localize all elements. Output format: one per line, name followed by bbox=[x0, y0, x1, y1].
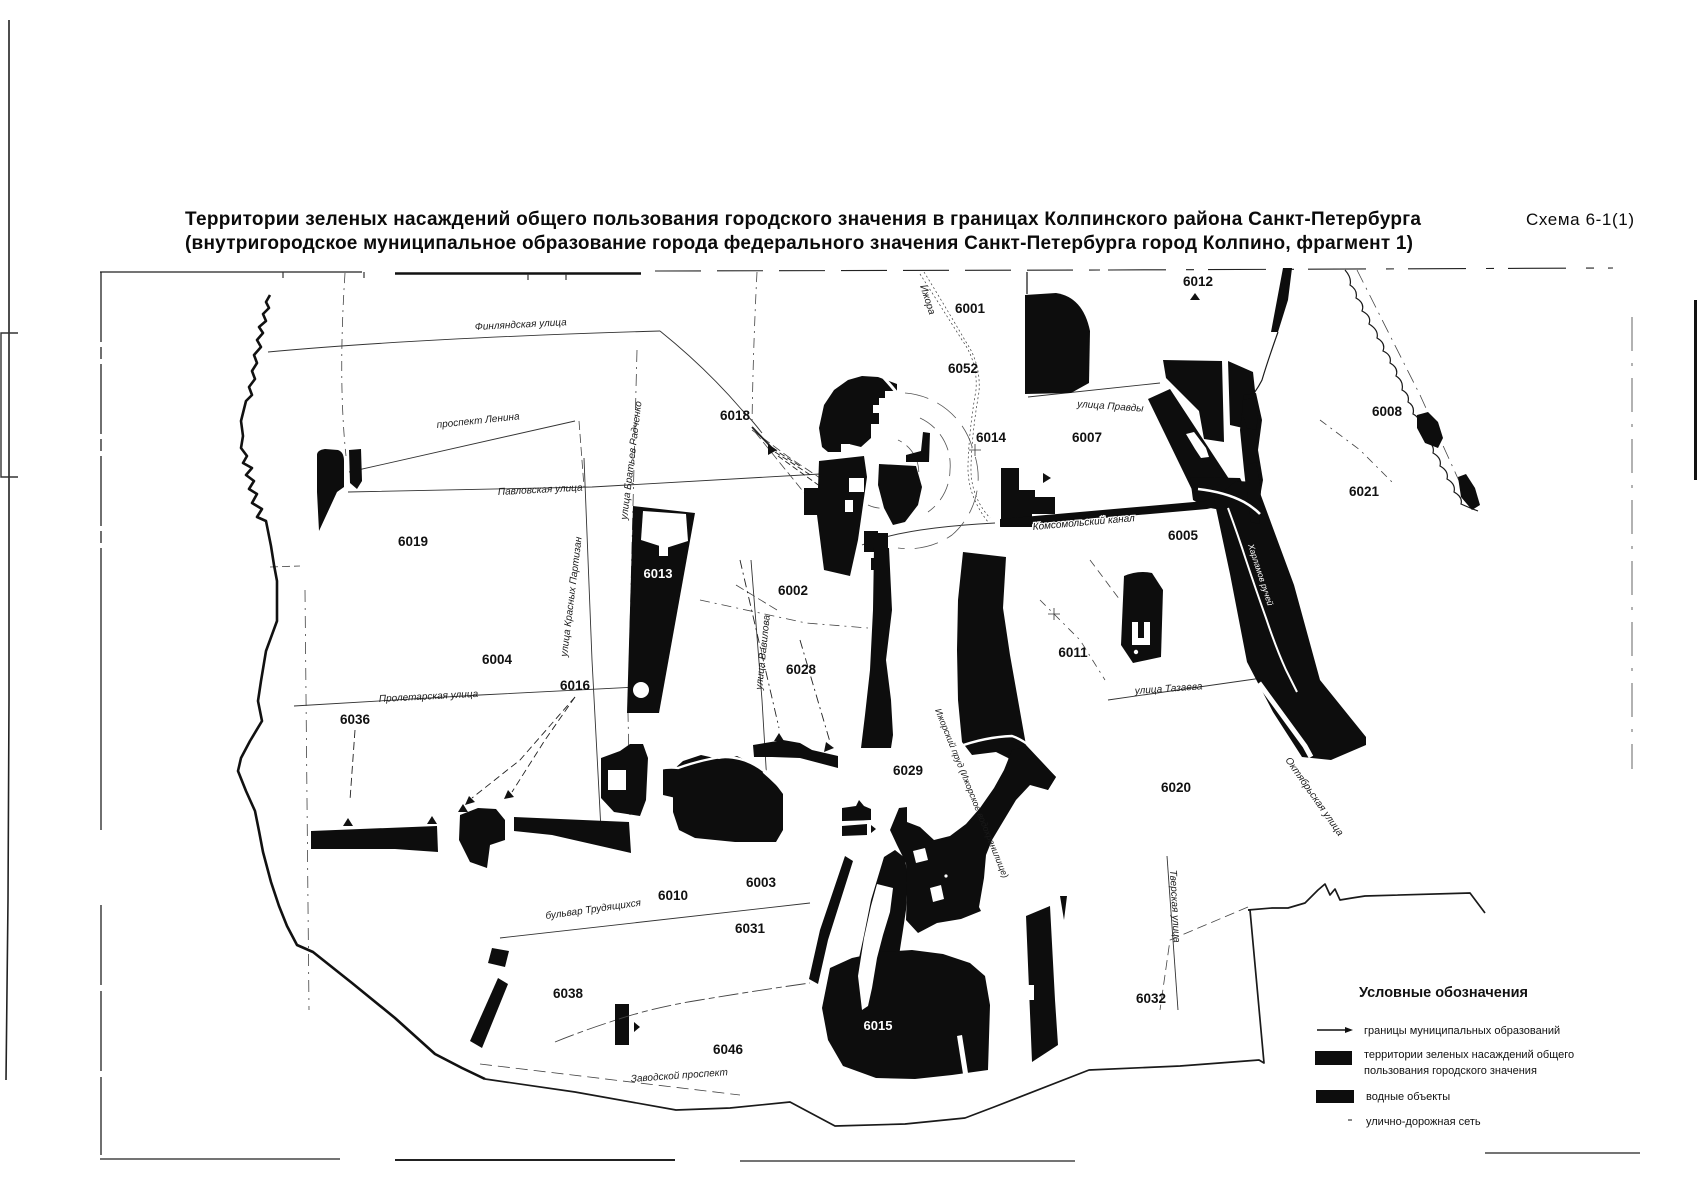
svg-text:6029: 6029 bbox=[893, 763, 923, 778]
svg-text:6013: 6013 bbox=[644, 566, 673, 581]
svg-text:пользования городского значени: пользования городского значения bbox=[1364, 1065, 1537, 1077]
svg-text:6019: 6019 bbox=[398, 534, 428, 549]
svg-text:Территории зеленых насаждений: Территории зеленых насаждений общего пол… bbox=[185, 209, 1421, 230]
svg-text:6021: 6021 bbox=[1349, 484, 1380, 499]
svg-text:6010: 6010 bbox=[658, 888, 688, 903]
svg-text:6036: 6036 bbox=[340, 712, 371, 727]
svg-text:(внутригородское муниципальное: (внутригородское муниципальное образован… bbox=[185, 233, 1413, 254]
svg-text:6014: 6014 bbox=[976, 430, 1007, 445]
svg-text:6005: 6005 bbox=[1168, 528, 1199, 543]
svg-text:6031: 6031 bbox=[735, 921, 766, 936]
svg-text:6016: 6016 bbox=[560, 678, 591, 693]
svg-text:6007: 6007 bbox=[1072, 430, 1102, 445]
svg-text:улично-дорожная сеть: улично-дорожная сеть bbox=[1366, 1116, 1481, 1128]
svg-text:6015: 6015 bbox=[864, 1018, 893, 1033]
svg-text:Схема 6-1(1): Схема 6-1(1) bbox=[1526, 210, 1634, 229]
svg-text:6038: 6038 bbox=[553, 986, 584, 1001]
svg-text:6028: 6028 bbox=[786, 662, 817, 677]
svg-text:6001: 6001 bbox=[955, 301, 986, 316]
svg-text:6032: 6032 bbox=[1136, 991, 1166, 1006]
svg-text:Условные обозначения: Условные обозначения bbox=[1359, 985, 1528, 1001]
svg-text:6002: 6002 bbox=[778, 583, 808, 598]
svg-text:территории зеленых насаждений: территории зеленых насаждений общего bbox=[1364, 1049, 1574, 1061]
svg-text:6004: 6004 bbox=[482, 652, 513, 667]
svg-text:водные объекты: водные объекты bbox=[1366, 1091, 1450, 1103]
svg-text:6052: 6052 bbox=[948, 361, 978, 376]
svg-text:6011: 6011 bbox=[1058, 645, 1088, 660]
svg-text:6012: 6012 bbox=[1183, 274, 1213, 289]
svg-text:6003: 6003 bbox=[746, 875, 777, 890]
svg-text:6020: 6020 bbox=[1161, 780, 1191, 795]
svg-text:6018: 6018 bbox=[720, 408, 751, 423]
svg-text:6046: 6046 bbox=[713, 1042, 744, 1057]
svg-text:6008: 6008 bbox=[1372, 404, 1403, 419]
svg-text:границы муниципальных образова: границы муниципальных образований bbox=[1364, 1025, 1560, 1037]
